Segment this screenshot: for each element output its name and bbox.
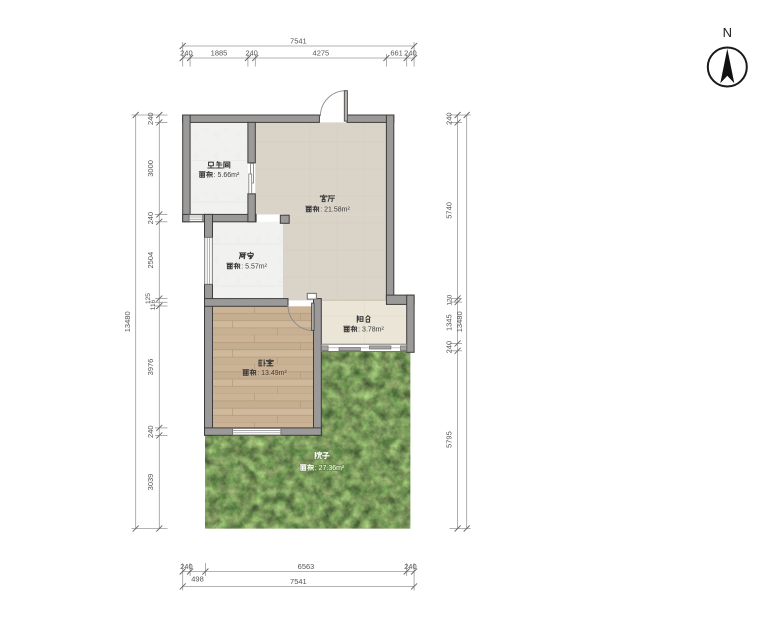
svg-text:661: 661 [390,49,403,58]
svg-text:240: 240 [180,562,193,571]
svg-text:4275: 4275 [313,49,330,58]
svg-text:7541: 7541 [290,577,307,586]
svg-text:240: 240 [404,49,417,58]
svg-text:240: 240 [445,341,454,354]
svg-text:: 5.66m²: : 5.66m² [214,172,240,179]
svg-text:3039: 3039 [146,474,155,491]
svg-text:240: 240 [180,49,193,58]
svg-text:: 21.58m²: : 21.58m² [320,206,350,213]
svg-text:: 3.78m²: : 3.78m² [358,326,384,333]
svg-text:240: 240 [146,212,155,225]
svg-text:1345: 1345 [445,314,454,331]
svg-text:3000: 3000 [146,160,155,177]
svg-text:7541: 7541 [290,37,307,46]
svg-text:6563: 6563 [298,562,315,571]
svg-text:116: 116 [150,299,157,310]
svg-text:240: 240 [445,112,454,125]
svg-text:1885: 1885 [211,49,228,58]
svg-text:: 13.49m²: : 13.49m² [257,370,287,377]
svg-text:2504: 2504 [146,252,155,269]
svg-text:: 27.36m²: : 27.36m² [315,465,345,472]
svg-text:13480: 13480 [123,311,132,332]
svg-text:3976: 3976 [146,359,155,376]
svg-text:498: 498 [191,575,204,584]
svg-text:240: 240 [245,49,258,58]
svg-text:N: N [723,25,732,40]
svg-text:120: 120 [447,294,454,305]
svg-text:: 5.57m²: : 5.57m² [241,263,267,270]
svg-text:5740: 5740 [445,202,454,219]
svg-text:5795: 5795 [445,431,454,448]
svg-text:240: 240 [404,562,417,571]
svg-text:13480: 13480 [455,311,464,332]
svg-text:240: 240 [146,425,155,438]
svg-text:240: 240 [146,112,155,125]
